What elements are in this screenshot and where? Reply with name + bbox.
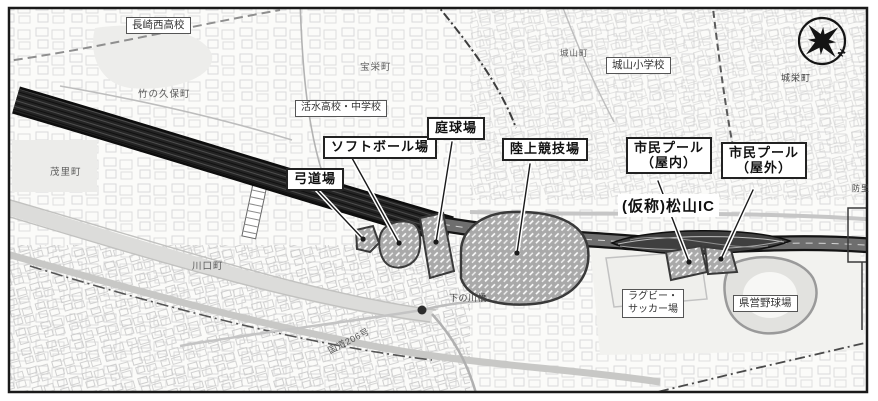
place-kawaguchi-text: 川口町 [192, 261, 224, 272]
label-athletics-text: 陸上競技場 [510, 141, 580, 156]
label-tennis-text: 庭球場 [435, 120, 477, 135]
junction-dot [418, 306, 427, 315]
label-matsuyama-ic-text: (仮称)松山IC [622, 198, 715, 215]
label-nagasaki-nishi-hs: 長崎西高校 [126, 17, 191, 34]
place-kawaguchi: 川口町 [192, 258, 224, 272]
place-mori: 茂里町 [50, 164, 82, 178]
label-baseball-stadium-text: 県営野球場 [739, 297, 792, 309]
place-joei-text: 城栄町 [781, 73, 811, 83]
label-rugby-line2: サッカー場 [628, 304, 678, 317]
label-matsuyama-ic: (仮称)松山IC [618, 194, 719, 217]
label-shimonokawa-bridge-text: 下の川橋 [449, 293, 487, 303]
place-shiroyama: 城山町 [560, 47, 589, 59]
label-pool-outdoor: 市民プール （屋外） [721, 142, 807, 179]
place-takenokubo: 竹の久保町 [138, 86, 191, 100]
label-shimonokawa-bridge: 下の川橋 [449, 291, 487, 304]
place-shiroyama-text: 城山町 [560, 48, 589, 58]
map-screenshot: N 長崎西高校 城山小学校 活水高校・中学校 ラグビー・ サッカー場 県営野球場… [0, 0, 878, 401]
label-pool-outdoor-line2: （屋外） [729, 161, 799, 176]
place-takenokubo-text: 竹の久保町 [138, 89, 191, 100]
label-shiroyama-es-text: 城山小学校 [612, 59, 665, 71]
label-rugby-soccer: ラグビー・ サッカー場 [622, 289, 684, 318]
place-mori-text: 茂里町 [50, 167, 82, 178]
label-softball-text: ソフトボール場 [331, 139, 429, 154]
label-tennis: 庭球場 [427, 117, 485, 140]
label-shiroyama-es: 城山小学校 [606, 57, 671, 74]
place-joei: 城栄町 [781, 71, 811, 84]
label-pool-indoor: 市民プール （屋内） [626, 137, 712, 174]
place-edge-partial: 防里 [852, 183, 870, 194]
label-nagasaki-nishi-hs-text: 長崎西高校 [132, 19, 185, 31]
label-pool-indoor-line1: 市民プール [634, 141, 704, 156]
place-edge-partial-text: 防里 [852, 184, 870, 193]
place-hoei-text: 宝栄町 [360, 62, 392, 73]
label-kassui-school-text: 活水高校・中学校 [301, 102, 381, 113]
label-pool-outdoor-line1: 市民プール [729, 146, 799, 161]
place-hoei: 宝栄町 [360, 59, 392, 73]
base-map: N [0, 0, 878, 401]
label-athletics: 陸上競技場 [502, 138, 588, 161]
label-archery-text: 弓道場 [294, 171, 336, 186]
label-baseball-stadium: 県営野球場 [733, 295, 798, 312]
label-archery: 弓道場 [286, 168, 344, 191]
label-rugby-line1: ラグビー・ [628, 291, 678, 304]
label-kassui-school: 活水高校・中学校 [295, 100, 387, 117]
label-pool-indoor-line2: （屋内） [634, 156, 704, 171]
label-softball: ソフトボール場 [323, 136, 437, 159]
